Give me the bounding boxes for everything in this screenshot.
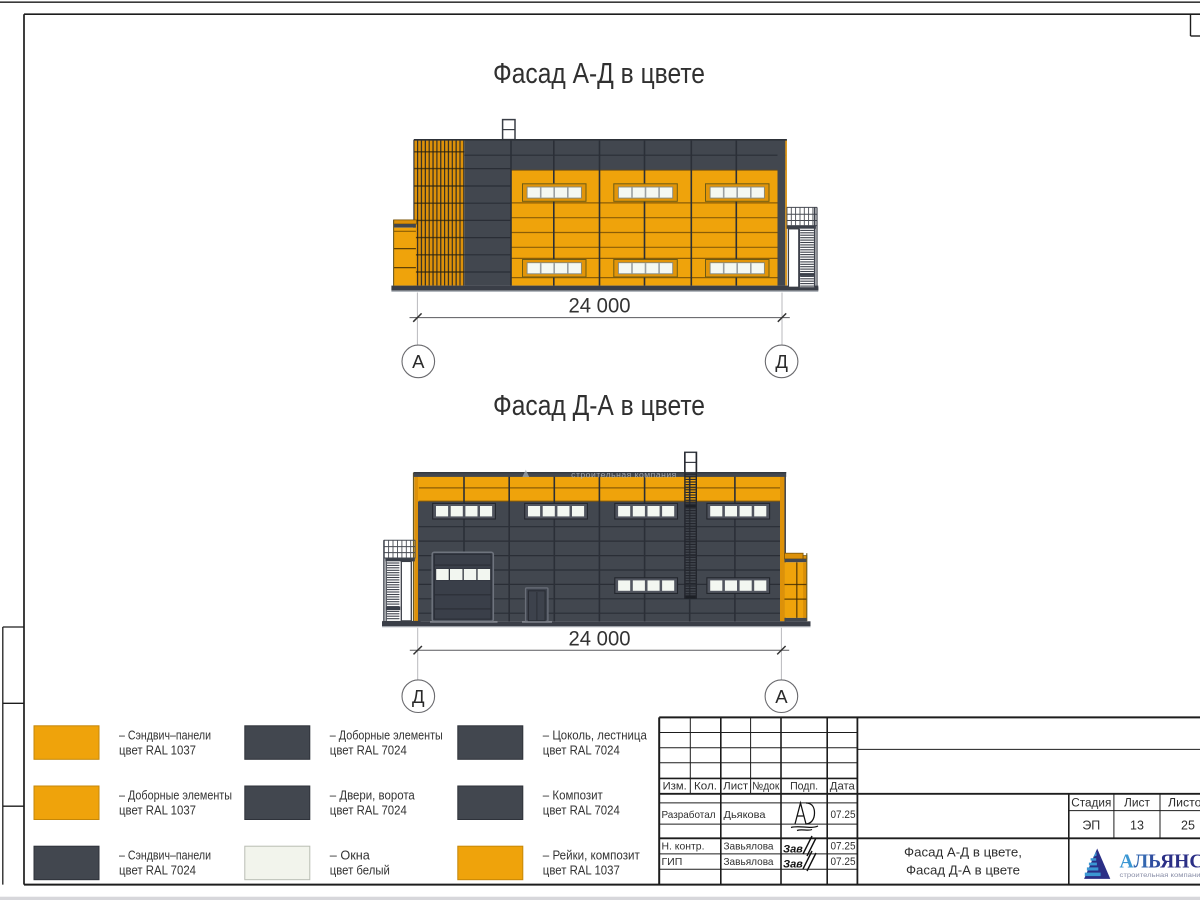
- svg-text:Зав: Зав: [783, 859, 803, 871]
- svg-text:А: А: [775, 686, 788, 707]
- svg-text:Фасад Д-А в цвете: Фасад Д-А в цвете: [906, 863, 1020, 878]
- svg-text:Стадия: Стадия: [1071, 798, 1111, 810]
- svg-text:Изм.: Изм.: [663, 781, 687, 793]
- svg-text:Завьялова: Завьялова: [724, 856, 774, 868]
- svg-text:цвет RAL 7024: цвет RAL 7024: [119, 864, 196, 878]
- svg-text:07.25: 07.25: [831, 840, 856, 852]
- svg-text:– Сэндвич–панели: – Сэндвич–панели: [119, 849, 211, 863]
- svg-text:– Сэндвич–панели: – Сэндвич–панели: [119, 728, 211, 742]
- svg-text:Лист: Лист: [1124, 798, 1151, 810]
- svg-text:Кол.: Кол.: [694, 781, 717, 793]
- svg-text:цвет RAL 7024: цвет RAL 7024: [543, 804, 620, 818]
- svg-text:Д: Д: [412, 686, 425, 707]
- svg-text:ЭП: ЭП: [1082, 819, 1100, 833]
- svg-text:цвет RAL 7024: цвет RAL 7024: [330, 743, 407, 757]
- svg-text:25: 25: [1181, 819, 1195, 833]
- svg-text:Завьялова: Завьялова: [724, 840, 774, 852]
- svg-text:07.25: 07.25: [831, 856, 856, 868]
- svg-text:13: 13: [1130, 819, 1144, 833]
- svg-text:– Двери, ворота: – Двери, ворота: [330, 789, 415, 803]
- svg-text:цвет RAL 7024: цвет RAL 7024: [330, 804, 407, 818]
- svg-text:Зав: Зав: [783, 844, 803, 856]
- svg-text:07.25: 07.25: [831, 809, 856, 821]
- svg-text:Фасад А-Д в цвете,: Фасад А-Д в цвете,: [904, 845, 1022, 860]
- svg-text:24 000: 24 000: [569, 295, 631, 318]
- svg-text:№док: №док: [752, 781, 779, 793]
- svg-text:А: А: [412, 351, 425, 372]
- svg-text:Дата: Дата: [830, 781, 856, 793]
- svg-text:– Доборные элементы: – Доборные элементы: [330, 728, 443, 742]
- svg-text:24 000: 24 000: [569, 627, 631, 650]
- svg-text:Листов: Листов: [1168, 798, 1200, 810]
- svg-text:– Цоколь, лестница: – Цоколь, лестница: [543, 728, 647, 742]
- svg-text:строительная компания: строительная компания: [571, 470, 677, 480]
- svg-text:Разработал: Разработал: [662, 809, 716, 821]
- svg-text:цвет RAL 1037: цвет RAL 1037: [119, 804, 196, 818]
- svg-text:– Композит: – Композит: [543, 789, 603, 803]
- svg-text:Фасад А-Д в цвете: Фасад А-Д в цвете: [493, 58, 705, 90]
- svg-text:Д: Д: [775, 351, 788, 372]
- svg-text:АЛЬЯНС: АЛЬЯНС: [1120, 851, 1200, 873]
- svg-text:строительная компани: строительная компани: [1120, 872, 1200, 879]
- svg-text:цвет RAL 1037: цвет RAL 1037: [119, 743, 196, 757]
- svg-text:– Доборные элементы: – Доборные элементы: [119, 789, 232, 803]
- svg-text:– Окна: – Окна: [330, 849, 370, 863]
- svg-text:цвет RAL 7024: цвет RAL 7024: [543, 743, 620, 757]
- svg-text:Дьякова: Дьякова: [724, 809, 766, 821]
- svg-text:– Рейки, композит: – Рейки, композит: [543, 849, 640, 863]
- svg-text:Фасад Д-А в цвете: Фасад Д-А в цвете: [493, 390, 705, 422]
- svg-text:цвет RAL 1037: цвет RAL 1037: [543, 864, 620, 878]
- svg-text:Н. контр.: Н. контр.: [662, 840, 705, 852]
- svg-text:Подп.: Подп.: [790, 781, 818, 793]
- svg-text:ГИП: ГИП: [662, 856, 683, 868]
- svg-text:цвет белый: цвет белый: [330, 864, 390, 878]
- svg-text:Лист: Лист: [723, 781, 748, 793]
